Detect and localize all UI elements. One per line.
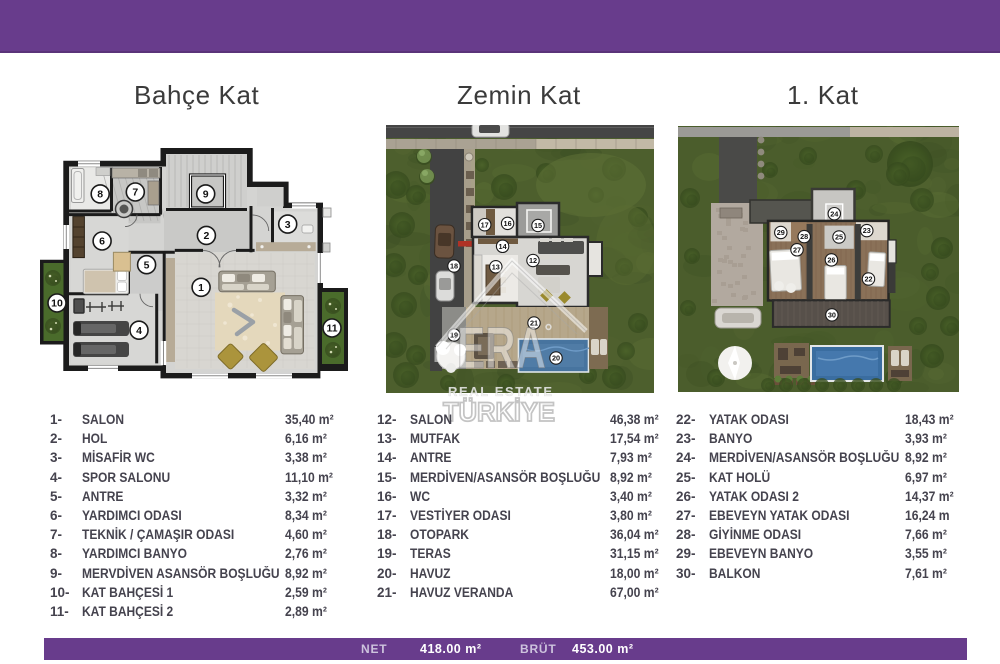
- svg-text:10: 10: [51, 298, 63, 310]
- svg-text:6: 6: [99, 236, 105, 248]
- svg-text:28: 28: [800, 232, 808, 241]
- svg-text:26: 26: [827, 256, 835, 265]
- svg-text:16: 16: [504, 219, 512, 228]
- svg-text:11: 11: [326, 323, 337, 335]
- svg-text:17: 17: [481, 220, 489, 229]
- svg-text:4: 4: [136, 325, 142, 337]
- svg-text:3: 3: [285, 219, 291, 231]
- svg-text:5: 5: [144, 259, 150, 271]
- svg-text:ERA: ERA: [457, 316, 546, 381]
- svg-text:29: 29: [777, 228, 785, 237]
- svg-text:1: 1: [198, 282, 204, 294]
- svg-text:8: 8: [97, 189, 103, 201]
- svg-text:24: 24: [830, 209, 839, 218]
- svg-text:30: 30: [828, 311, 836, 320]
- svg-text:9: 9: [203, 189, 209, 201]
- svg-text:7: 7: [132, 187, 138, 199]
- svg-text:2: 2: [203, 230, 209, 242]
- svg-text:23: 23: [863, 226, 871, 235]
- svg-text:25: 25: [835, 233, 843, 242]
- svg-text:27: 27: [793, 245, 801, 254]
- svg-text:22: 22: [864, 275, 872, 284]
- svg-text:15: 15: [534, 221, 542, 230]
